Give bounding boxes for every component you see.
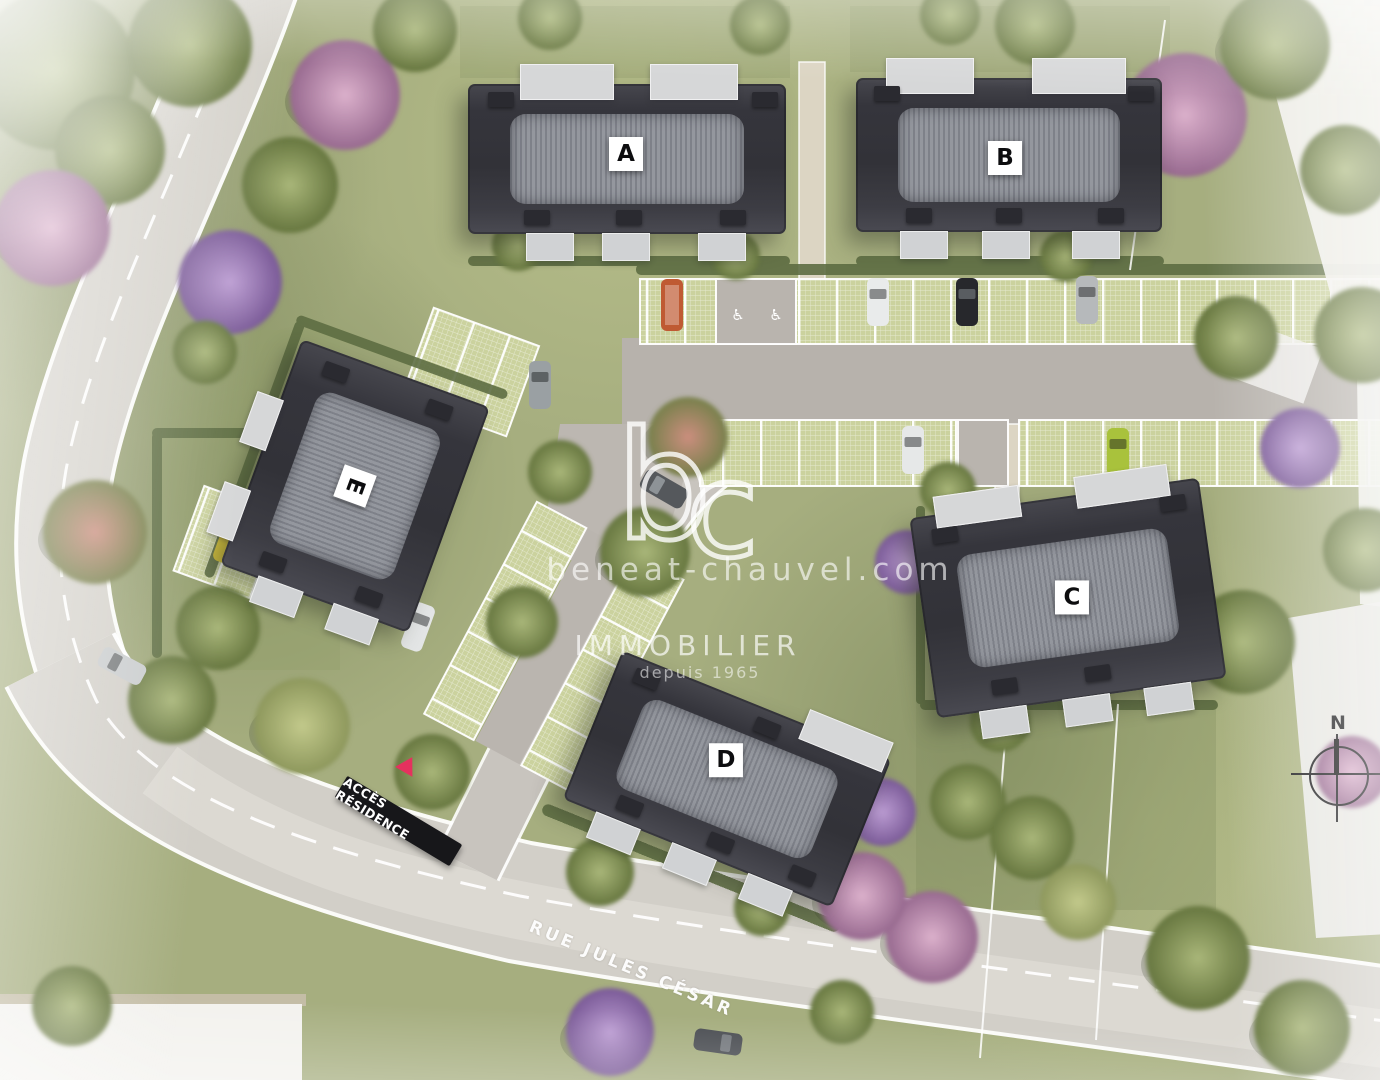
building-label-c: C [1055,580,1089,614]
balcony [526,233,574,261]
compass-needle [1334,739,1339,775]
roof-terrace [520,64,614,100]
watermark-tagline: depuis 1965 [640,663,761,682]
building-c: C [909,478,1226,719]
balcony [982,231,1030,259]
building-label-b: B [988,141,1022,175]
building-label-d: D [709,743,743,777]
roof-terrace [650,64,738,100]
balcony [900,231,948,259]
building-a: A [468,84,786,234]
compass-rose: N [1294,714,1380,826]
roof-terrace [1032,58,1126,94]
building-b: B [856,78,1162,232]
disabled-parking-icon: ♿ [769,306,782,324]
balcony [698,233,746,261]
balcony [1072,231,1120,259]
disabled-parking-icon: ♿ [731,306,744,324]
compass-north-label: N [1330,712,1346,734]
building-label-a: A [609,137,643,171]
balcony [602,233,650,261]
watermark-domain: beneat-chauvel.com [546,552,953,588]
site-plan: ♿ ♿ [0,0,1380,1080]
watermark-brand: IMMOBILIER [574,629,801,662]
